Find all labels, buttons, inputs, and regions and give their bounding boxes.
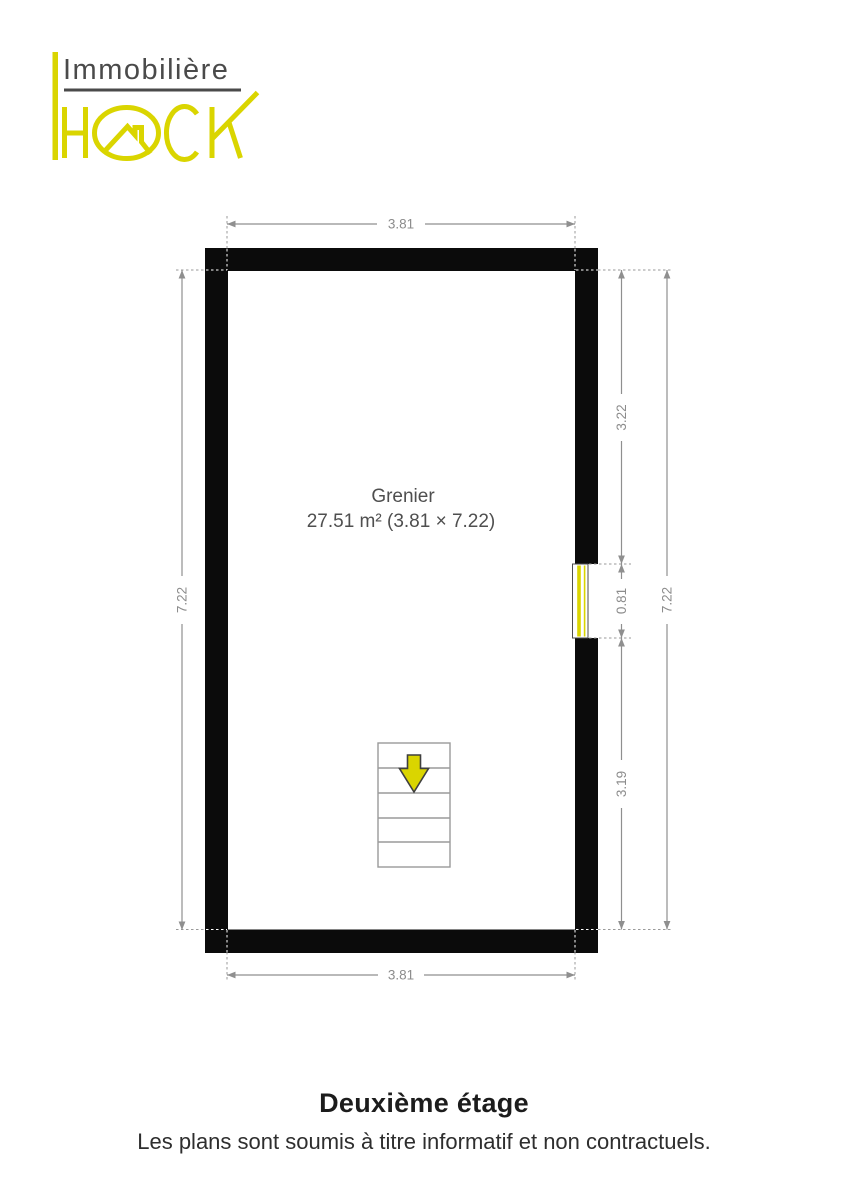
logo-accent-bar — [53, 52, 59, 160]
wall-bottom — [205, 930, 598, 954]
disclaimer-text: Les plans sont soumis à titre informatif… — [0, 1129, 848, 1155]
room-area: 27.51 m² (3.81 × 7.22) — [307, 511, 496, 532]
logo-letter-k — [212, 93, 258, 159]
logo-underline — [64, 89, 241, 92]
logo-house-roof-icon — [103, 127, 151, 154]
dim-right-lower: 3.19 — [614, 771, 629, 797]
wall-left — [205, 248, 228, 953]
floor-plan: 3.81 3.81 7.22 3.22 0.81 3.19 7.22 Greni… — [150, 200, 690, 1000]
dim-top-width: 3.81 — [388, 217, 414, 232]
wall-top — [205, 248, 598, 271]
logo-letter-h — [65, 107, 86, 158]
floorplan-page: Immobilière — [0, 0, 848, 1200]
dim-left-height: 7.22 — [175, 587, 190, 613]
brand-logo: Immobilière — [40, 40, 270, 175]
staircase — [378, 743, 450, 867]
window-symbol — [573, 564, 589, 638]
window-glass-line-inner — [584, 566, 586, 637]
dim-bottom-width: 3.81 — [388, 968, 414, 983]
logo-letter-c — [166, 107, 197, 160]
logo-brand-name: Immobilière — [63, 54, 229, 86]
dim-right-total: 7.22 — [660, 587, 675, 613]
footer: Deuxième étage Les plans sont soumis à t… — [0, 1088, 848, 1155]
dim-window-height: 0.81 — [614, 588, 629, 614]
logo-wordmark-hack-icon — [65, 93, 258, 160]
room-name: Grenier — [371, 486, 435, 507]
wall-right-upper — [575, 248, 598, 564]
window-glass-line-outer — [577, 566, 581, 637]
wall-right-lower — [575, 638, 598, 953]
dim-right-upper: 3.22 — [614, 404, 629, 430]
floor-title: Deuxième étage — [0, 1088, 848, 1119]
